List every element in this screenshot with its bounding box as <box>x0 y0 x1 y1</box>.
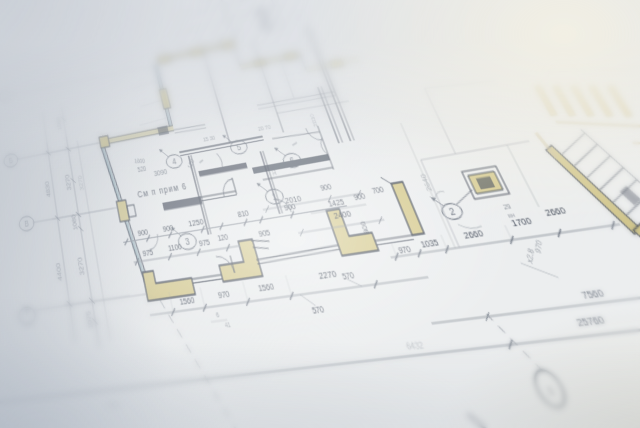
svg-text:1560: 1560 <box>257 281 276 293</box>
svg-text:810: 810 <box>236 208 250 219</box>
svg-text:2640: 2640 <box>418 172 434 192</box>
svg-text:1100: 1100 <box>167 242 183 253</box>
svg-text:975: 975 <box>198 237 212 248</box>
svg-text:25760: 25760 <box>575 315 609 332</box>
svg-text:1250: 1250 <box>187 217 205 230</box>
svg-text:4: 4 <box>171 158 177 168</box>
svg-text:2660: 2660 <box>543 205 569 220</box>
svg-text:700: 700 <box>371 185 387 196</box>
svg-text:900: 900 <box>137 227 149 238</box>
svg-text:520: 520 <box>137 164 148 174</box>
svg-text:900: 900 <box>162 223 175 234</box>
svg-text:970: 970 <box>397 244 414 256</box>
svg-text:1075: 1075 <box>84 309 94 329</box>
svg-text:900: 900 <box>352 192 367 203</box>
svg-text:905: 905 <box>257 228 272 239</box>
svg-text:6: 6 <box>215 311 220 319</box>
svg-text:2: 2 <box>448 207 458 219</box>
svg-text:41: 41 <box>224 321 232 330</box>
svg-text:В: В <box>24 220 30 231</box>
svg-text:1425: 1425 <box>327 197 346 209</box>
svg-text:3270: 3270 <box>64 173 73 191</box>
svg-text:3270: 3270 <box>76 174 85 191</box>
svg-text:7560: 7560 <box>580 288 608 304</box>
svg-text:3270: 3270 <box>76 256 85 276</box>
svg-text:3: 3 <box>184 237 191 249</box>
svg-text:970: 970 <box>217 289 231 301</box>
svg-text:Б: Б <box>9 157 15 167</box>
svg-text:2660: 2660 <box>462 228 486 243</box>
svg-text:А: А <box>4 92 9 101</box>
svg-text:1: 1 <box>545 384 558 400</box>
svg-text:2270: 2270 <box>317 269 338 284</box>
svg-text:120: 120 <box>216 232 229 243</box>
svg-text:20 70: 20 70 <box>257 124 271 133</box>
svg-text:1035: 1035 <box>419 237 441 250</box>
svg-text:См п прим 6: См п прим 6 <box>137 182 189 201</box>
svg-text:3090: 3090 <box>153 167 169 178</box>
svg-text:2010: 2010 <box>284 194 304 207</box>
svg-text:6432: 6432 <box>404 339 426 352</box>
svg-text:4400: 4400 <box>55 262 64 282</box>
svg-text:800: 800 <box>358 219 371 234</box>
svg-text:Г: Г <box>25 309 30 321</box>
svg-text:15 30: 15 30 <box>202 135 216 144</box>
svg-text:4830: 4830 <box>44 180 52 198</box>
svg-text:8000: 8000 <box>105 399 121 410</box>
svg-text:5: 5 <box>236 143 243 153</box>
svg-text:900: 900 <box>319 182 334 193</box>
svg-text:570: 570 <box>311 304 327 316</box>
svg-text:2030: 2030 <box>309 113 319 127</box>
svg-text:1560: 1560 <box>179 295 196 307</box>
